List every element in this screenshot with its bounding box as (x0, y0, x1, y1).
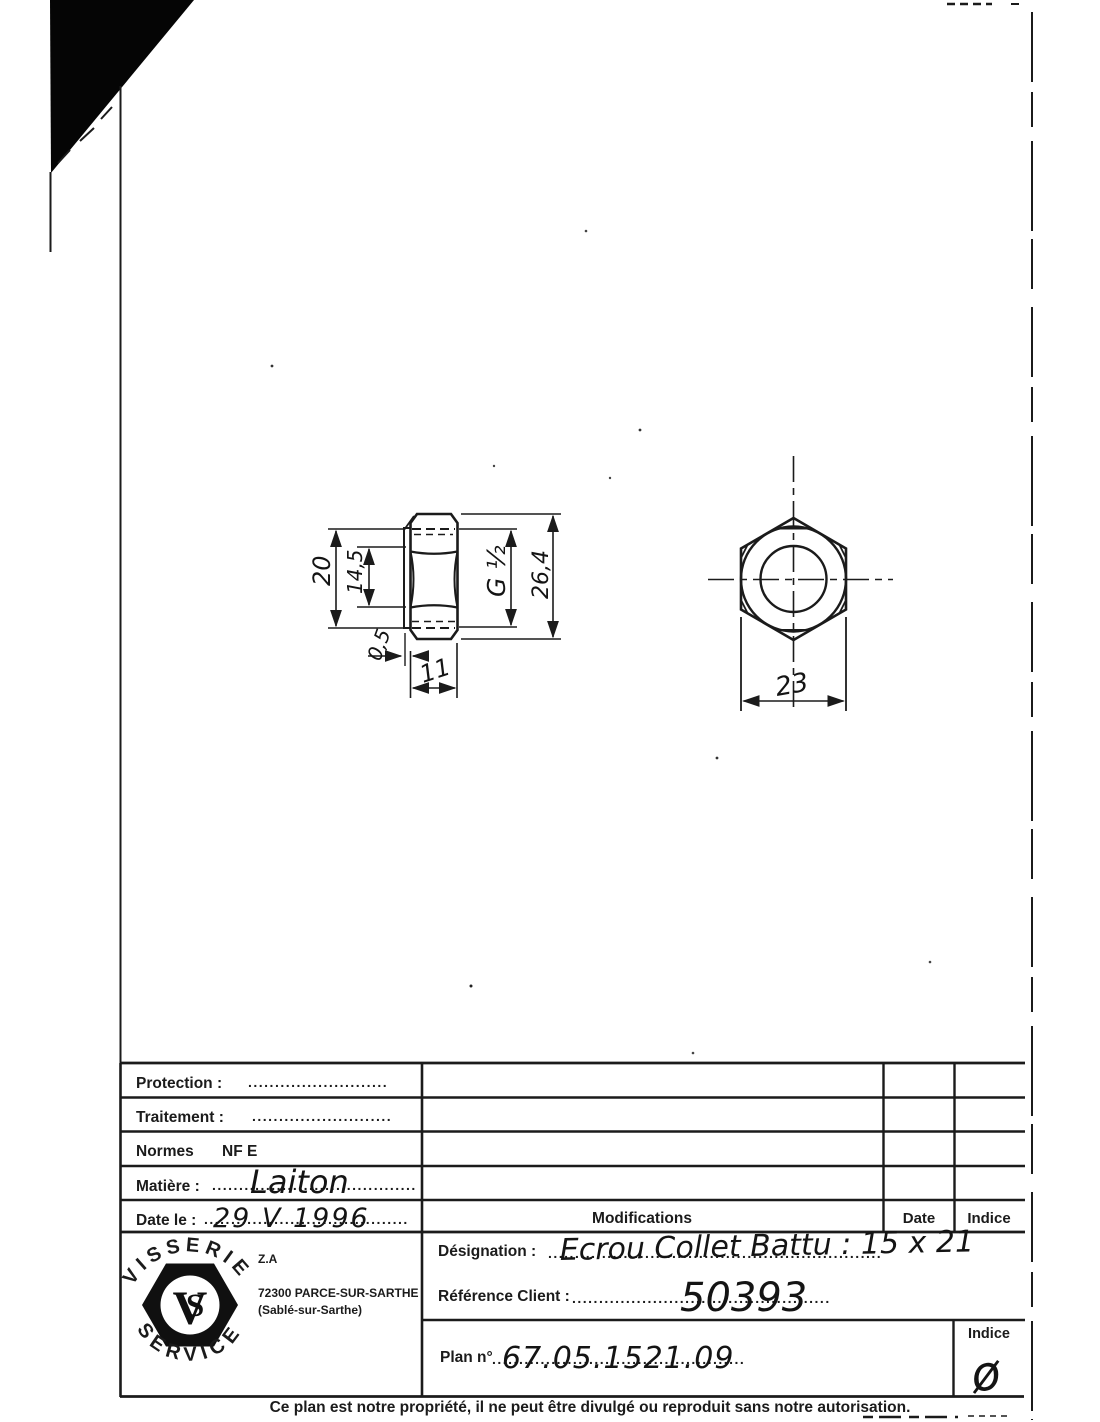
indice-handwritten-mark: ø (966, 1344, 1004, 1404)
reference-client-label: Référence Client : (438, 1288, 570, 1305)
normes-value: NF E (222, 1143, 257, 1160)
dim-across-corners-text: 26,4 (529, 550, 554, 599)
dim-across-flats-text: 23 (773, 668, 811, 703)
plan-number-label: Plan n° (440, 1349, 493, 1366)
footer-property-notice: Ce plan est notre propriété, il ne peut … (270, 1399, 911, 1416)
scan-corner-artifact (50, 0, 194, 173)
scanned-technical-drawing-sheet: 20 14,5 G ½ 26,4 0,5 11 23 (0, 0, 1100, 1422)
dim-height-text: 20 (308, 555, 336, 586)
protection-dotted-line: .......................... (248, 1074, 388, 1090)
drawing-canvas: 20 14,5 G ½ 26,4 0,5 11 23 (0, 0, 1100, 1422)
designation-label: Désignation : (438, 1243, 536, 1260)
designation-block: Désignation : ..........................… (438, 1224, 1010, 1404)
indice-box-label: Indice (968, 1326, 1010, 1342)
matiere-label: Matière : (136, 1178, 200, 1195)
dim-thread-text: G ½ (482, 545, 511, 597)
traitement-label: Traitement : (136, 1109, 224, 1126)
designation-handwritten-value: Ecrou Collet Battu : 15 x 21 (559, 1224, 974, 1268)
dim-flange-text: 0,5 (362, 626, 395, 664)
dim-bore-text: 14,5 (343, 549, 367, 594)
company-address-city: 72300 PARCE-SUR-SARTHE (258, 1286, 418, 1300)
date-le-label: Date le : (136, 1212, 196, 1229)
reference-handwritten-value: 50393 (680, 1275, 807, 1321)
company-address-sable: (Sablé-sur-Sarthe) (258, 1303, 362, 1317)
company-logo: V S VISSERIE SERVICE Z.A 72300 PARCE-SUR… (119, 1234, 419, 1366)
logo-monogram-s: S (186, 1288, 204, 1324)
nut-body-outline (411, 514, 458, 639)
protection-label: Protection : (136, 1075, 222, 1092)
plan-handwritten-value: 67.05.1521.09 (502, 1341, 734, 1376)
traitement-dotted-line: .......................... (252, 1108, 392, 1124)
modifications-header: Modifications (592, 1210, 692, 1227)
indice-column-header: Indice (967, 1210, 1010, 1227)
date-handwritten-value: 29 V 1996 (213, 1203, 370, 1234)
company-address-za: Z.A (258, 1252, 278, 1266)
matiere-handwritten-value: Laiton (250, 1163, 349, 1201)
dim-width-text: 11 (416, 653, 454, 689)
normes-label: Normes (136, 1143, 194, 1160)
nut-front-view: 23 (708, 456, 893, 712)
nut-side-view (404, 514, 458, 639)
